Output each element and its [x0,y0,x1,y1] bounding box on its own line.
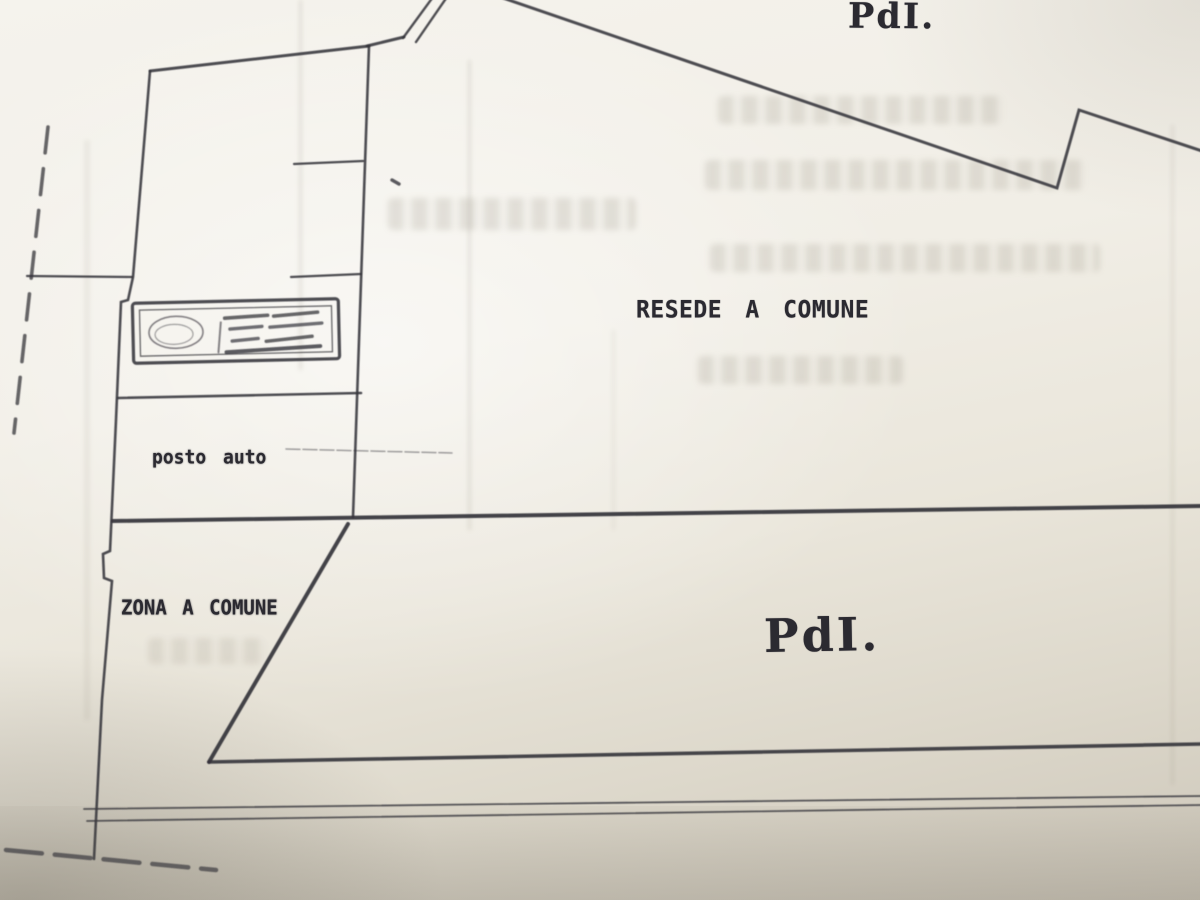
strip-partition-middle [291,274,361,277]
illegible-stamp-box [132,299,339,364]
photo-shadow [0,806,1200,900]
boundary-double-diagonal-inner [416,0,447,42]
boundary-double-diagonal-outer [403,0,433,38]
label-lower-parcel: PdI. [764,607,881,663]
label-common-yard: RESEDE A COMUNE [636,296,869,324]
main-dividing-line [113,506,1200,521]
label-parking: posto auto [152,446,266,468]
zona-diagonal-boundary [209,524,348,762]
site-plan-photo: PdI. RESEDE A COMUNE posto auto ZONA A C… [0,0,1200,900]
label-top-parcel: PdI. [848,0,936,37]
strip-partition-lower [118,393,361,398]
reference-dashed-line [286,449,452,453]
strip-left-wall [94,71,150,859]
adjacent-wall-left [27,276,132,277]
strip-right-wall [353,46,369,517]
strip-top-edge [150,46,369,71]
dashed-limit-left [14,127,48,433]
ink-speck [392,180,399,184]
boundary-connector [367,37,404,46]
lower-parcel-bottom [209,744,1200,762]
strip-partition-upper [294,161,363,164]
label-common-zone: ZONA A COMUNE [121,596,278,619]
